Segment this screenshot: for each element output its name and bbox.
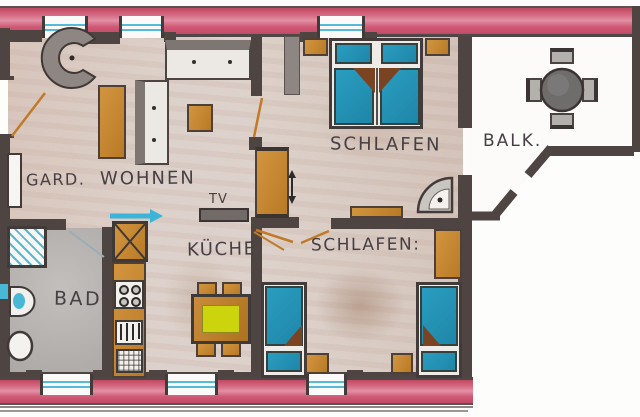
wall (86, 32, 120, 44)
door-jamb (0, 76, 14, 80)
wall-balcony-diagonal (528, 148, 551, 175)
window (119, 16, 164, 38)
cabinet-tall (98, 85, 126, 159)
mattress (334, 68, 374, 125)
shower (7, 226, 47, 268)
sofa-button (152, 138, 156, 142)
kitchen-chair (196, 342, 216, 357)
room-label-schlafen1: SCHLAFEN (330, 134, 442, 156)
coat-closet (7, 153, 22, 208)
room-label-wohnen: WOHNEN (100, 168, 196, 190)
mattress (380, 68, 420, 125)
mattress (420, 286, 458, 346)
nightstand (391, 353, 413, 374)
balcony-table (541, 69, 583, 111)
window-glass (168, 381, 215, 388)
nightstand (425, 38, 450, 56)
floorplan-canvas: GARD. WOHNEN TV SCHLAFEN BALK. KÜCHE BAD… (0, 0, 640, 417)
wall-schlafen-divider (331, 218, 463, 229)
wall-right-apartment (458, 36, 472, 128)
wall-left-exterior (0, 28, 10, 80)
wall-balcony-diagonal (495, 192, 514, 215)
sofa-button (192, 60, 196, 64)
stove (114, 280, 144, 309)
window (317, 16, 365, 38)
plot-line (0, 410, 468, 412)
room-label-schlafen2: SCHLAFEN: (311, 235, 421, 256)
balcony-table-highlight (547, 74, 569, 96)
balcony-chair (550, 48, 574, 64)
room-label-balkon: BALK. (483, 131, 542, 151)
window (306, 374, 347, 395)
wall (347, 370, 363, 378)
tv-label: TV (209, 192, 228, 207)
pillow (381, 43, 418, 64)
window-glass (309, 381, 344, 388)
wall (218, 370, 234, 378)
dishwasher (116, 349, 143, 373)
wall-accent (0, 284, 8, 299)
balcony-chair (582, 78, 598, 102)
balcony-chair (550, 113, 574, 129)
kitchen-chair (221, 342, 241, 357)
wall-wohnen-corridor (251, 34, 262, 96)
coffee-table (187, 104, 213, 132)
pillow (335, 43, 372, 64)
window-glass (43, 381, 90, 388)
room-label-bad: BAD (54, 288, 103, 311)
balcony-chair (526, 78, 542, 102)
room-label-kueche: KÜCHE (187, 238, 257, 260)
wall-schlafen1-left (284, 36, 300, 95)
pillow (266, 351, 302, 372)
plot-line (0, 406, 473, 408)
nightstand (303, 38, 328, 56)
wall-balcony-right (632, 6, 640, 152)
window-glass (45, 24, 85, 31)
window (42, 16, 88, 38)
nightstand (305, 353, 329, 374)
sideboard (350, 206, 403, 218)
sofa-vertical (135, 80, 169, 165)
window-glass (320, 24, 362, 31)
sofa-button (228, 60, 232, 64)
wardrobe (434, 229, 462, 279)
room-label-gard: GARD. (26, 169, 86, 189)
window (40, 374, 93, 395)
tv-stand (199, 208, 249, 222)
kitchen-table-top (202, 305, 240, 333)
sofa-horizontal (165, 40, 251, 80)
kitchen-tall-cabinet (112, 221, 148, 262)
sofa-button (152, 106, 156, 110)
bed-center-line (376, 68, 378, 125)
window (165, 374, 218, 395)
mattress (265, 286, 303, 346)
window-glass (122, 24, 161, 31)
cutlery-drawer (115, 320, 143, 345)
corridor-wardrobe (255, 147, 289, 218)
door-jamb (0, 134, 14, 138)
pillow (421, 351, 457, 372)
